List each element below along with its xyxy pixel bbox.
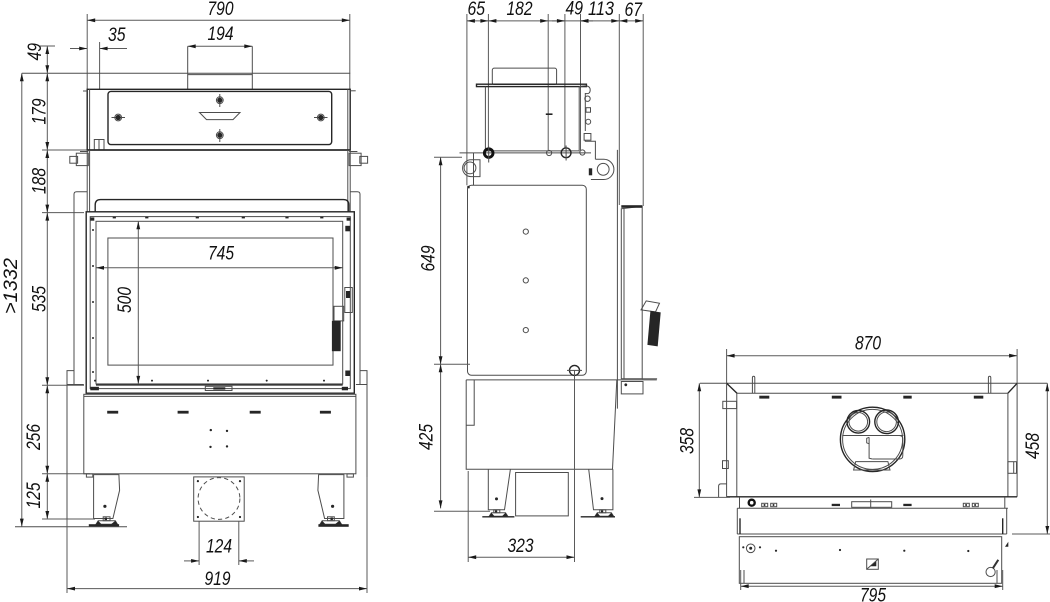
svg-text:182: 182 (507, 0, 533, 20)
svg-text:49: 49 (566, 0, 584, 20)
svg-text:125: 125 (24, 482, 45, 508)
svg-text:188: 188 (30, 168, 51, 194)
svg-text:49: 49 (25, 43, 46, 61)
svg-text:790: 790 (208, 0, 234, 20)
svg-text:535: 535 (30, 286, 51, 312)
svg-text:256: 256 (24, 424, 45, 451)
svg-text:795: 795 (860, 586, 886, 602)
svg-text:67: 67 (625, 0, 644, 21)
svg-text:>1332: >1332 (1, 258, 22, 314)
svg-text:113: 113 (588, 0, 614, 20)
svg-text:35: 35 (108, 25, 126, 46)
svg-text:870: 870 (855, 334, 881, 355)
svg-text:179: 179 (30, 98, 51, 124)
svg-text:458: 458 (1023, 433, 1044, 459)
svg-text:500: 500 (115, 287, 136, 313)
svg-text:649: 649 (419, 245, 440, 271)
svg-text:425: 425 (417, 424, 438, 450)
svg-text:358: 358 (678, 428, 699, 454)
svg-text:919: 919 (205, 569, 231, 590)
svg-text:194: 194 (208, 24, 234, 45)
svg-text:65: 65 (468, 0, 486, 20)
svg-text:745: 745 (208, 244, 234, 265)
svg-text:124: 124 (206, 537, 232, 558)
svg-text:323: 323 (508, 536, 534, 557)
